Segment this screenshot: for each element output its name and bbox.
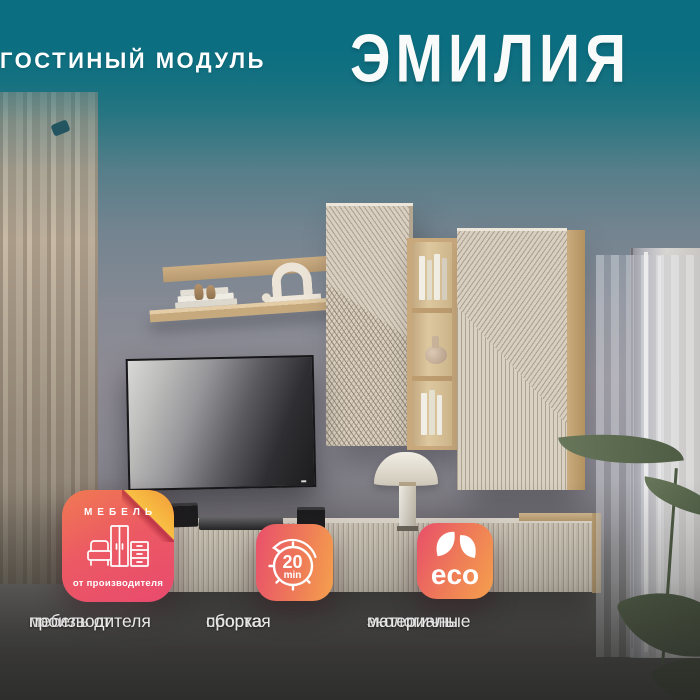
shelf-vase xyxy=(415,314,449,366)
manufacturer-badge: МЕБЕЛЬ от производителя xyxy=(62,490,174,602)
assembly-badge: 20 min xyxy=(256,524,333,601)
figurine xyxy=(194,284,204,301)
eco-badge: eco xyxy=(417,523,493,599)
shelf-books xyxy=(415,246,449,302)
shelf-books xyxy=(415,382,449,437)
open-shelf-unit xyxy=(407,238,457,450)
badge-header: МЕБЕЛЬ xyxy=(62,507,174,518)
product-title: ЭМИЛИЯ xyxy=(350,20,631,98)
wall-cabinet-right xyxy=(457,228,567,490)
tv-stand-wood-top xyxy=(519,513,600,521)
badge-footer: от производителя xyxy=(62,578,174,589)
product-banner: ЭМИЛИЯ ГОСТИНЫЙ МОДУЛЬ МЕБЕЛЬ от произво… xyxy=(0,0,700,700)
assembly-unit: min xyxy=(256,570,329,581)
product-subtitle: ГОСТИНЫЙ МОДУЛЬ xyxy=(0,48,266,74)
eco-label: eco xyxy=(417,559,493,591)
figurine xyxy=(206,285,216,300)
tv-screen xyxy=(126,355,317,491)
tv-led xyxy=(301,480,306,482)
wall-cabinet-left xyxy=(326,203,413,446)
wall-shelf xyxy=(146,250,336,323)
speaker-left xyxy=(171,503,199,528)
table-lamp xyxy=(374,452,438,486)
furniture-outline-icon xyxy=(86,524,150,570)
